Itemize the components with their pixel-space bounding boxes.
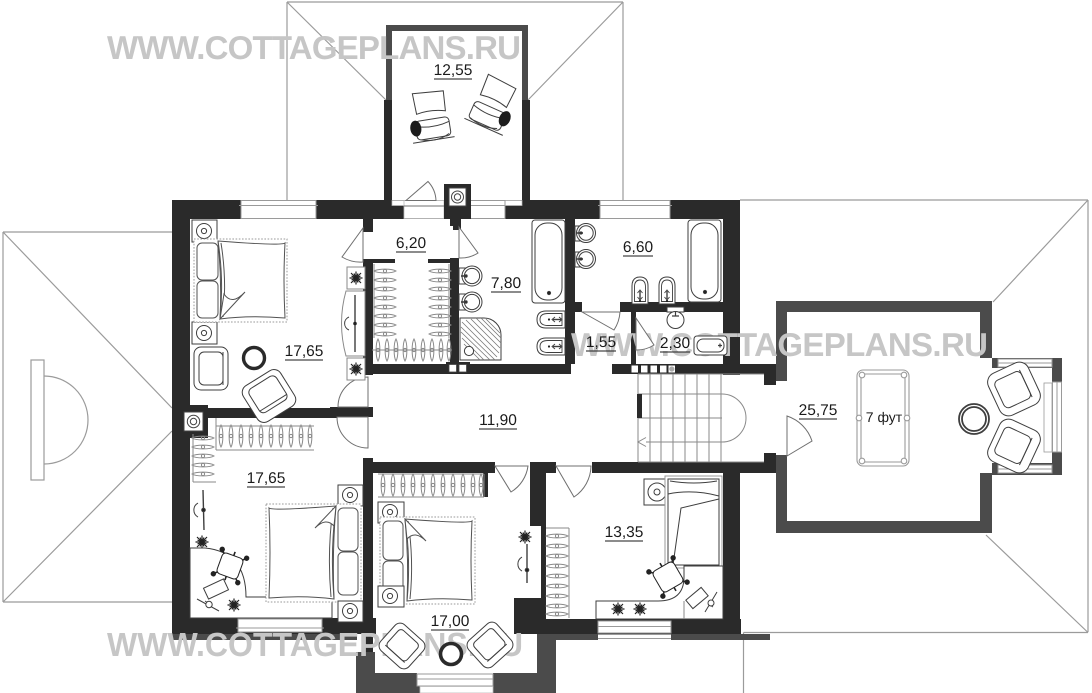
svg-text:WWW.COTTAGEPLANS.RU: WWW.COTTAGEPLANS.RU [571,326,988,363]
svg-text:1,55: 1,55 [586,334,616,351]
svg-text:12,55: 12,55 [434,62,473,79]
svg-text:25,75: 25,75 [799,402,838,419]
svg-text:6,20: 6,20 [396,235,427,252]
svg-text:6,60: 6,60 [623,239,654,256]
svg-text:7,80: 7,80 [491,275,522,292]
svg-text:17,65: 17,65 [247,470,286,487]
svg-text:17,00: 17,00 [431,613,470,630]
svg-text:7 фут: 7 фут [866,409,903,425]
svg-text:13,35: 13,35 [605,524,644,541]
svg-text:2,30: 2,30 [660,335,691,352]
svg-text:11,90: 11,90 [479,412,517,429]
svg-text:17,65: 17,65 [285,343,324,360]
svg-text:WWW.COTTAGEPLANS.RU: WWW.COTTAGEPLANS.RU [107,29,521,66]
